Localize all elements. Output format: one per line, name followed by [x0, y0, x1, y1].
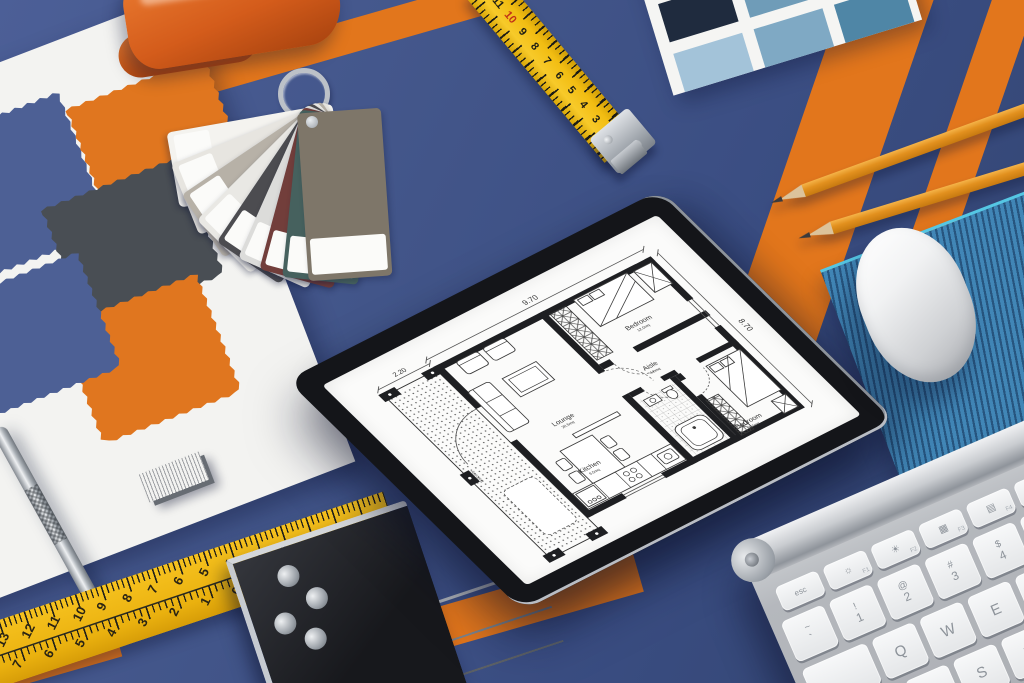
brightness-up-icon: ☀ — [889, 543, 902, 557]
rivet — [271, 610, 299, 638]
key-fn-label: F4 — [1005, 505, 1014, 513]
ruler-number: 5 — [72, 637, 89, 650]
key-label: 1 — [854, 611, 865, 626]
designer-desk-photo: 12 11 10 9 8 7 6 5 4 3 2 14 13 12 11 10 … — [0, 0, 1024, 683]
ruler-number: 11 — [44, 613, 64, 632]
ruler-number: 7 — [144, 583, 161, 596]
ruler-number: 7 — [9, 657, 26, 670]
ruler-number: 4 — [103, 626, 120, 639]
key-fn-label: F3 — [957, 525, 966, 533]
key-label: S — [974, 663, 990, 683]
expose-icon: ▦ — [937, 522, 950, 536]
ruler-number: 6 — [170, 574, 187, 587]
key-label: Q — [892, 641, 909, 661]
ruler-number: 5 — [196, 566, 213, 579]
dimension-left: 2.20 — [392, 367, 409, 378]
key-label: 3 — [950, 569, 961, 584]
key-label: esc — [793, 584, 808, 597]
rivet — [302, 625, 330, 653]
key-label: 2 — [902, 590, 913, 605]
ruler-number: 1 — [197, 595, 214, 608]
ruler-number: 9 — [93, 600, 110, 613]
key-label: W — [938, 620, 958, 641]
key-fn-label: F2 — [910, 546, 919, 554]
palette-swatch — [658, 0, 739, 42]
ruler-number: 6 — [40, 647, 57, 660]
ruler-number: 10 — [69, 604, 89, 624]
dashboard-icon: ▤ — [985, 501, 998, 515]
ruler-number: 13 — [0, 630, 12, 650]
ruler-number: 2 — [166, 605, 183, 618]
rivet — [275, 562, 303, 590]
dimension-top: 9.70 — [520, 293, 541, 307]
brightness-down-icon: ☼ — [842, 563, 855, 577]
ruler-number: 3 — [134, 616, 151, 629]
ruler-number: 8 — [119, 591, 136, 604]
key-label: E — [988, 600, 1004, 620]
palette-swatch — [673, 33, 754, 92]
paint-swatch-card — [297, 108, 393, 281]
key-label: 4 — [997, 548, 1008, 563]
dimension-right: 8.70 — [736, 317, 756, 332]
swatch-card-label-area — [310, 234, 388, 275]
rivet — [303, 584, 331, 612]
fan-deck-pin — [306, 116, 318, 128]
key-label: ` — [808, 632, 817, 646]
ruler-number: 12 — [18, 621, 38, 641]
key-fn-label: F1 — [862, 567, 871, 575]
try-square-head — [225, 500, 469, 683]
